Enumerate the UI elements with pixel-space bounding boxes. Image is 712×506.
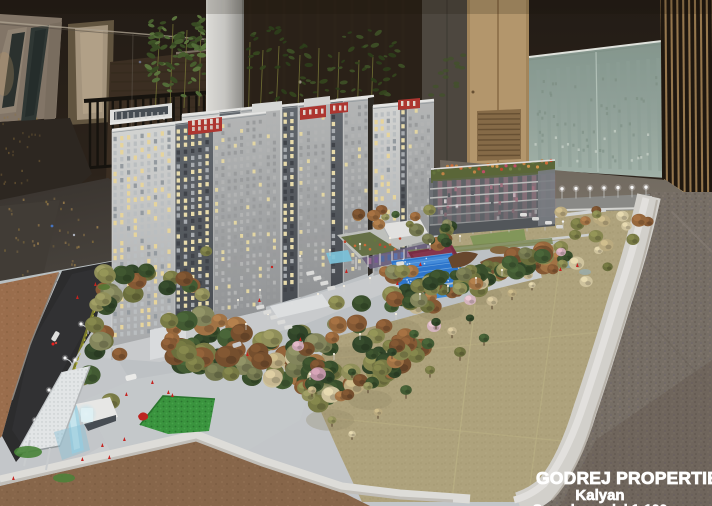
- svg-text:GODREJ PROPERTIES: GODREJ PROPERTIES: [536, 468, 712, 488]
- svg-text:Sample model 1:100: Sample model 1:100: [533, 501, 668, 506]
